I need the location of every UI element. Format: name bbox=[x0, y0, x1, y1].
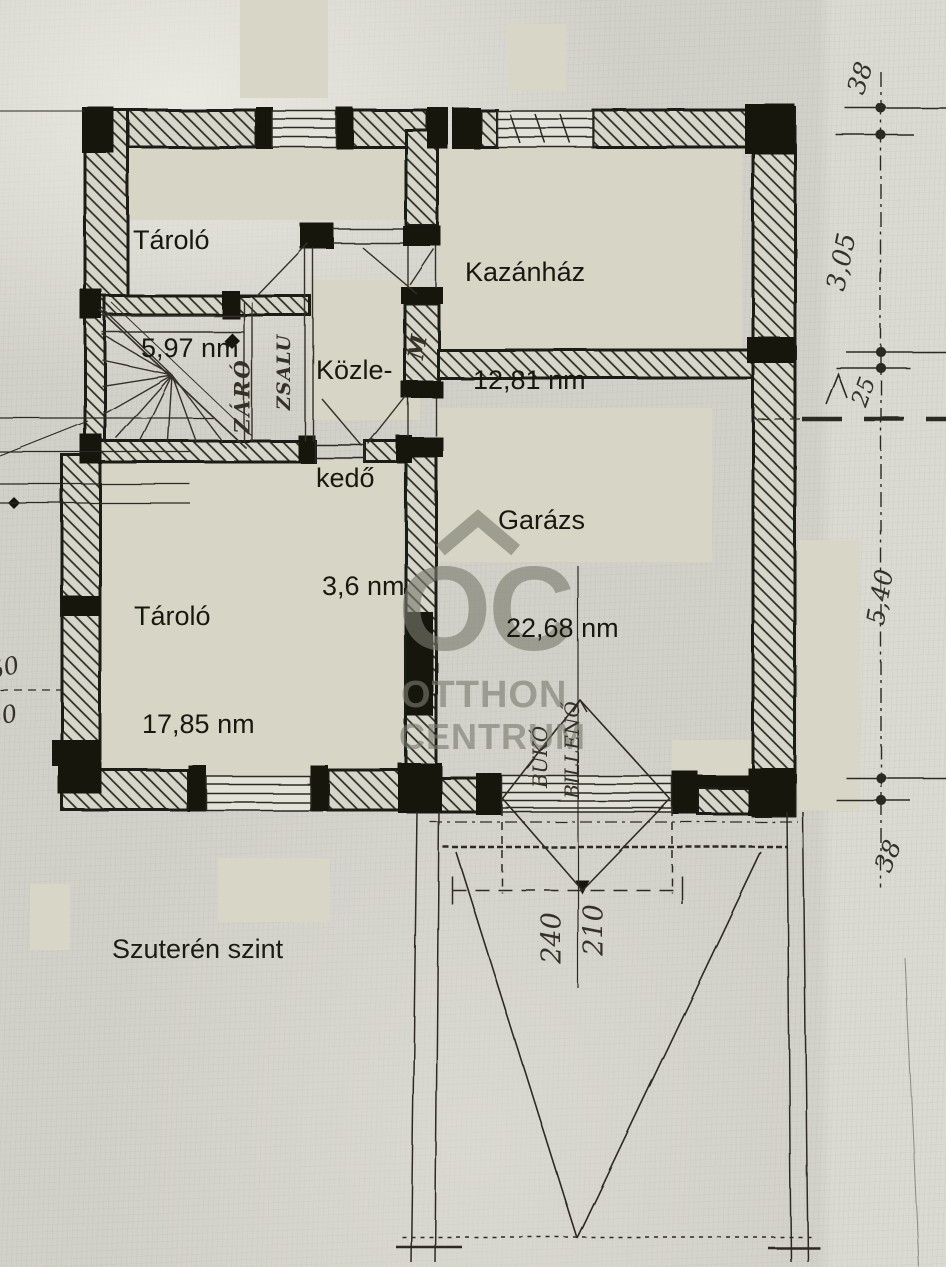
room-name: kedő bbox=[316, 460, 405, 496]
room-label-garazs: Garázs 22,68 nm bbox=[498, 430, 619, 718]
room-name: Közle- bbox=[316, 352, 405, 388]
room-name: Garázs bbox=[498, 502, 619, 538]
note-buko: BUKÓ bbox=[528, 726, 552, 788]
dim-garage-door-210: 210 bbox=[579, 904, 610, 956]
room-label-tarolo-top: Tároló 5,97 nm bbox=[133, 150, 239, 438]
floorplan-scan: OC OTTHON CENTRUM Tároló 5,97 nm Kazánhá… bbox=[0, 0, 946, 1267]
level-label: Szuterén szint bbox=[112, 934, 283, 965]
room-name: Kazánház bbox=[465, 254, 586, 290]
note-billeno: BILLENŐ bbox=[560, 701, 584, 799]
room-name: Tároló bbox=[133, 222, 239, 258]
room-area: 5,97 nm bbox=[133, 330, 239, 366]
room-area: 3,6 nm bbox=[316, 568, 405, 604]
room-label-kazanhaz: Kazánház 12,81 nm bbox=[465, 182, 586, 470]
note-wall-mark: M bbox=[403, 333, 433, 362]
note-stairs-zsalu: ZSALU bbox=[273, 334, 295, 410]
room-area: 22,68 nm bbox=[498, 610, 619, 646]
room-label-tarolo-left: Tároló 17,85 nm bbox=[134, 526, 255, 814]
room-label-kozlekedo: Közle- kedő 3,6 nm bbox=[316, 280, 405, 676]
note-stairs-zaro: ZÁRÓ bbox=[230, 358, 255, 433]
room-area: 12,81 nm bbox=[465, 362, 586, 398]
room-area: 17,85 nm bbox=[134, 706, 255, 742]
watermark-line2: CENTRUM bbox=[399, 716, 586, 758]
dim-garage-door-240: 240 bbox=[537, 912, 568, 964]
room-name: Tároló bbox=[134, 598, 255, 634]
